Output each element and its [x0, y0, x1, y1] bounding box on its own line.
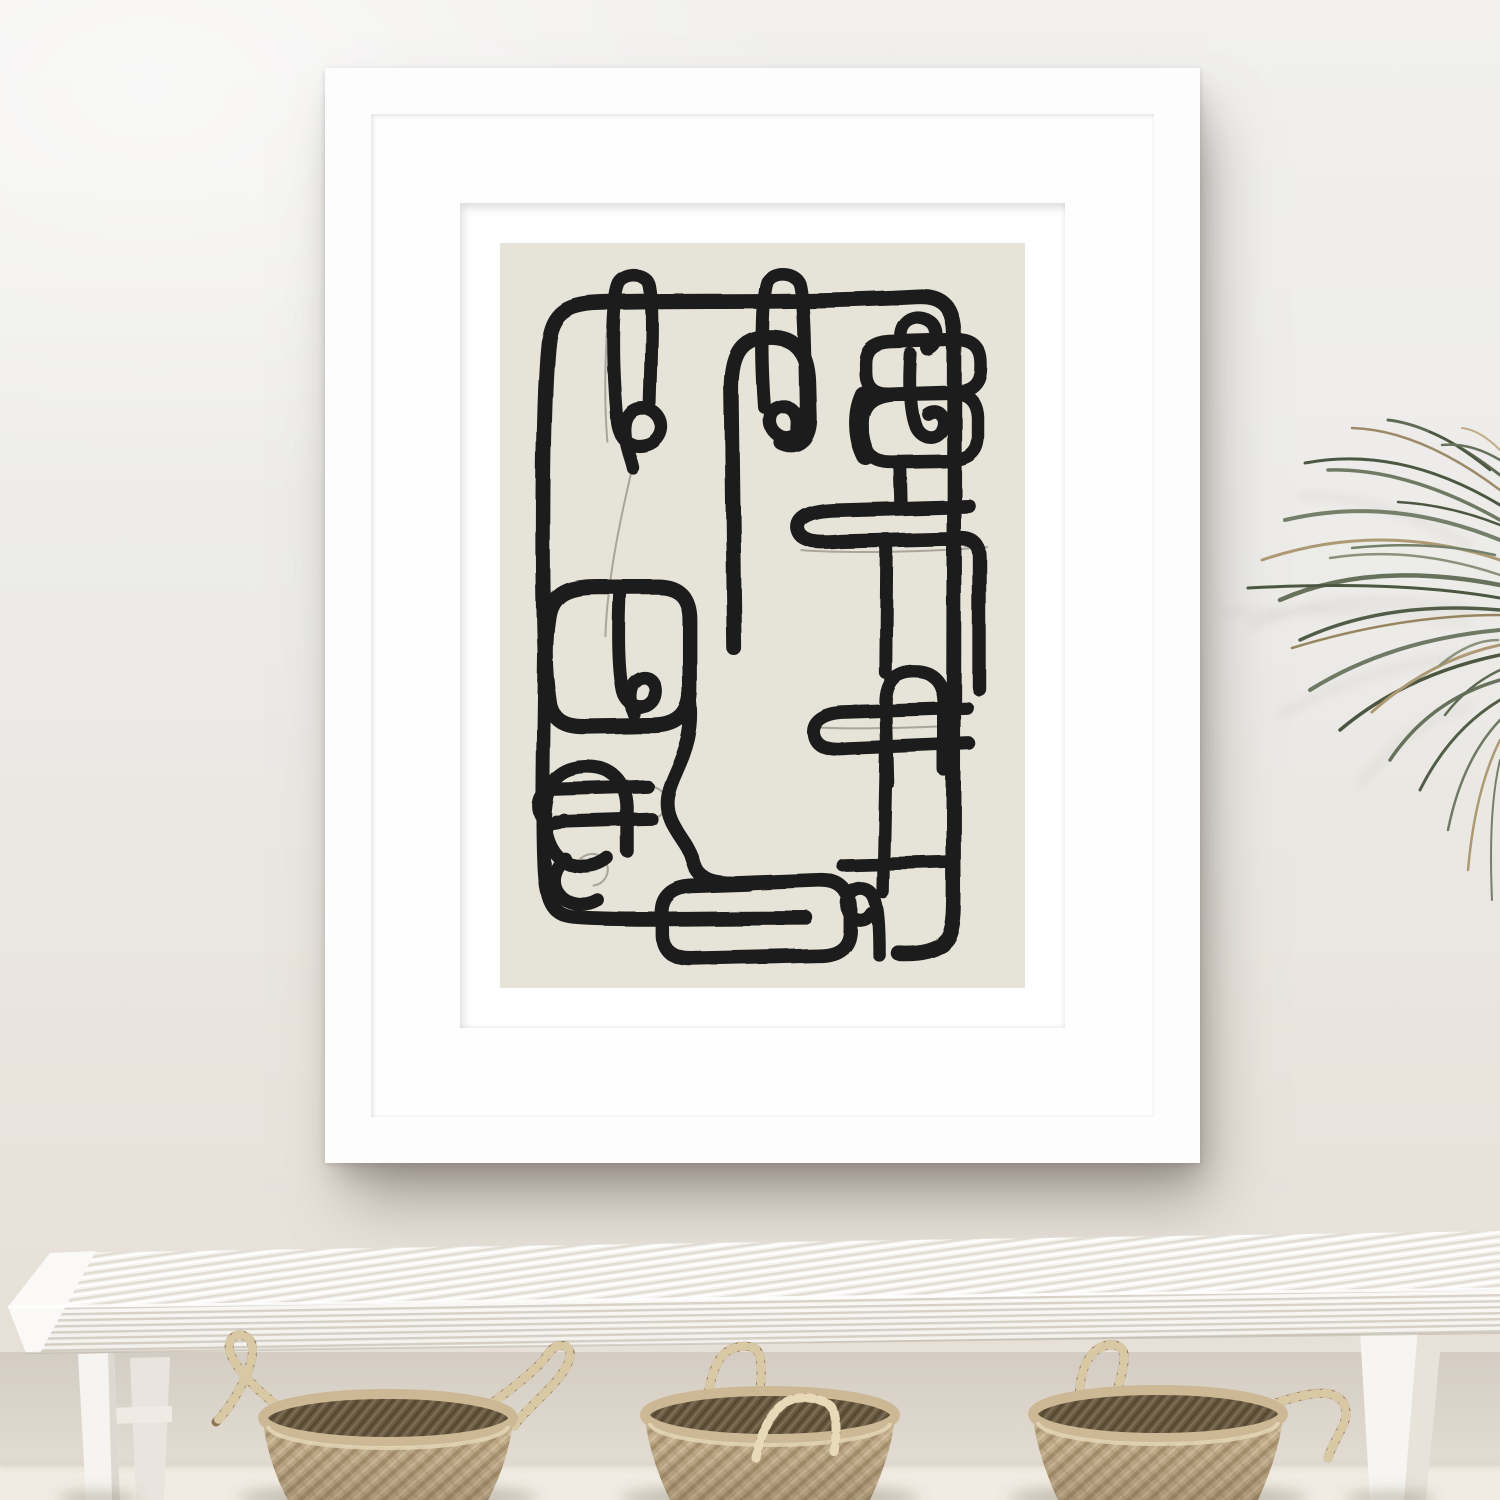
palm-leaf [1310, 630, 1500, 690]
palm-leaf [1372, 645, 1500, 712]
palm-plant [1248, 420, 1500, 900]
bench-stretcher [108, 1406, 172, 1424]
palm-leaf [1285, 511, 1500, 540]
scene [0, 0, 1500, 1500]
palm-leaf [1445, 670, 1500, 715]
palm-leaf [1330, 554, 1500, 575]
palm-leaf [1491, 760, 1500, 900]
bench-back-left-leg [130, 1357, 170, 1500]
furniture-layer [0, 0, 1500, 1500]
